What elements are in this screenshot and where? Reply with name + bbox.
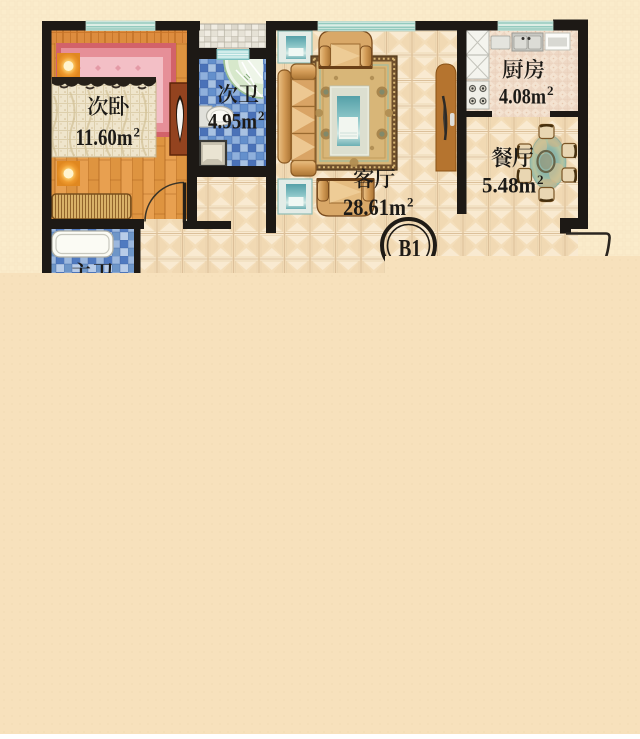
svg-text:11.60m: 11.60m <box>76 125 133 150</box>
svg-text:4.95m: 4.95m <box>208 108 257 133</box>
svg-text:2: 2 <box>547 83 554 98</box>
svg-text:5.48m: 5.48m <box>482 172 536 197</box>
svg-text:2: 2 <box>407 195 414 210</box>
svg-text:28.61m: 28.61m <box>343 195 406 220</box>
svg-text:4.08m: 4.08m <box>499 83 546 108</box>
svg-text:2: 2 <box>258 108 265 123</box>
svg-text:2: 2 <box>537 172 544 187</box>
svg-text:2: 2 <box>134 125 141 140</box>
